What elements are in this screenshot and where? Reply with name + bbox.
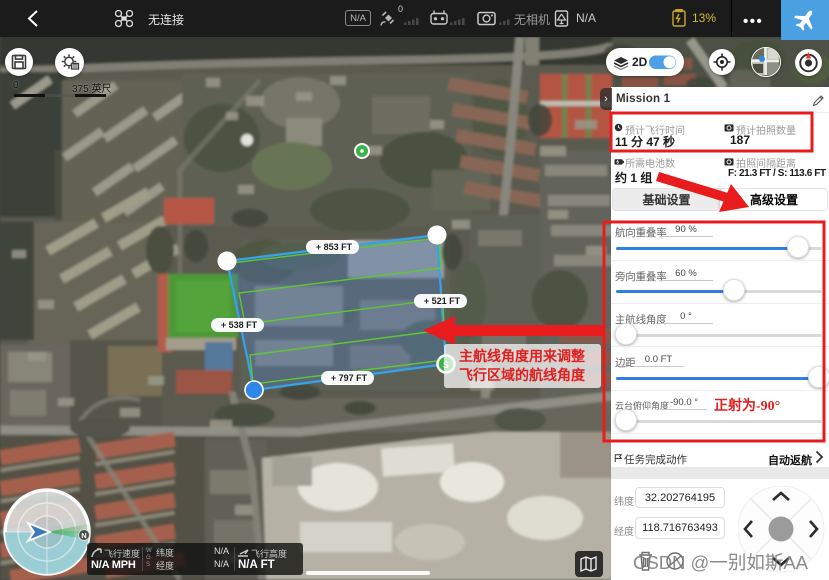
svg-text:+ 797 FT: + 797 FT (331, 373, 368, 383)
svg-text:+ 521 FT: + 521 FT (424, 296, 461, 306)
svg-text:2D: 2D (632, 55, 648, 69)
svg-text:N: N (81, 531, 86, 540)
svg-text:S: S (443, 360, 449, 370)
svg-text:+ 853 FT: + 853 FT (316, 242, 353, 252)
svg-text:+ 538 FT: + 538 FT (221, 320, 258, 330)
